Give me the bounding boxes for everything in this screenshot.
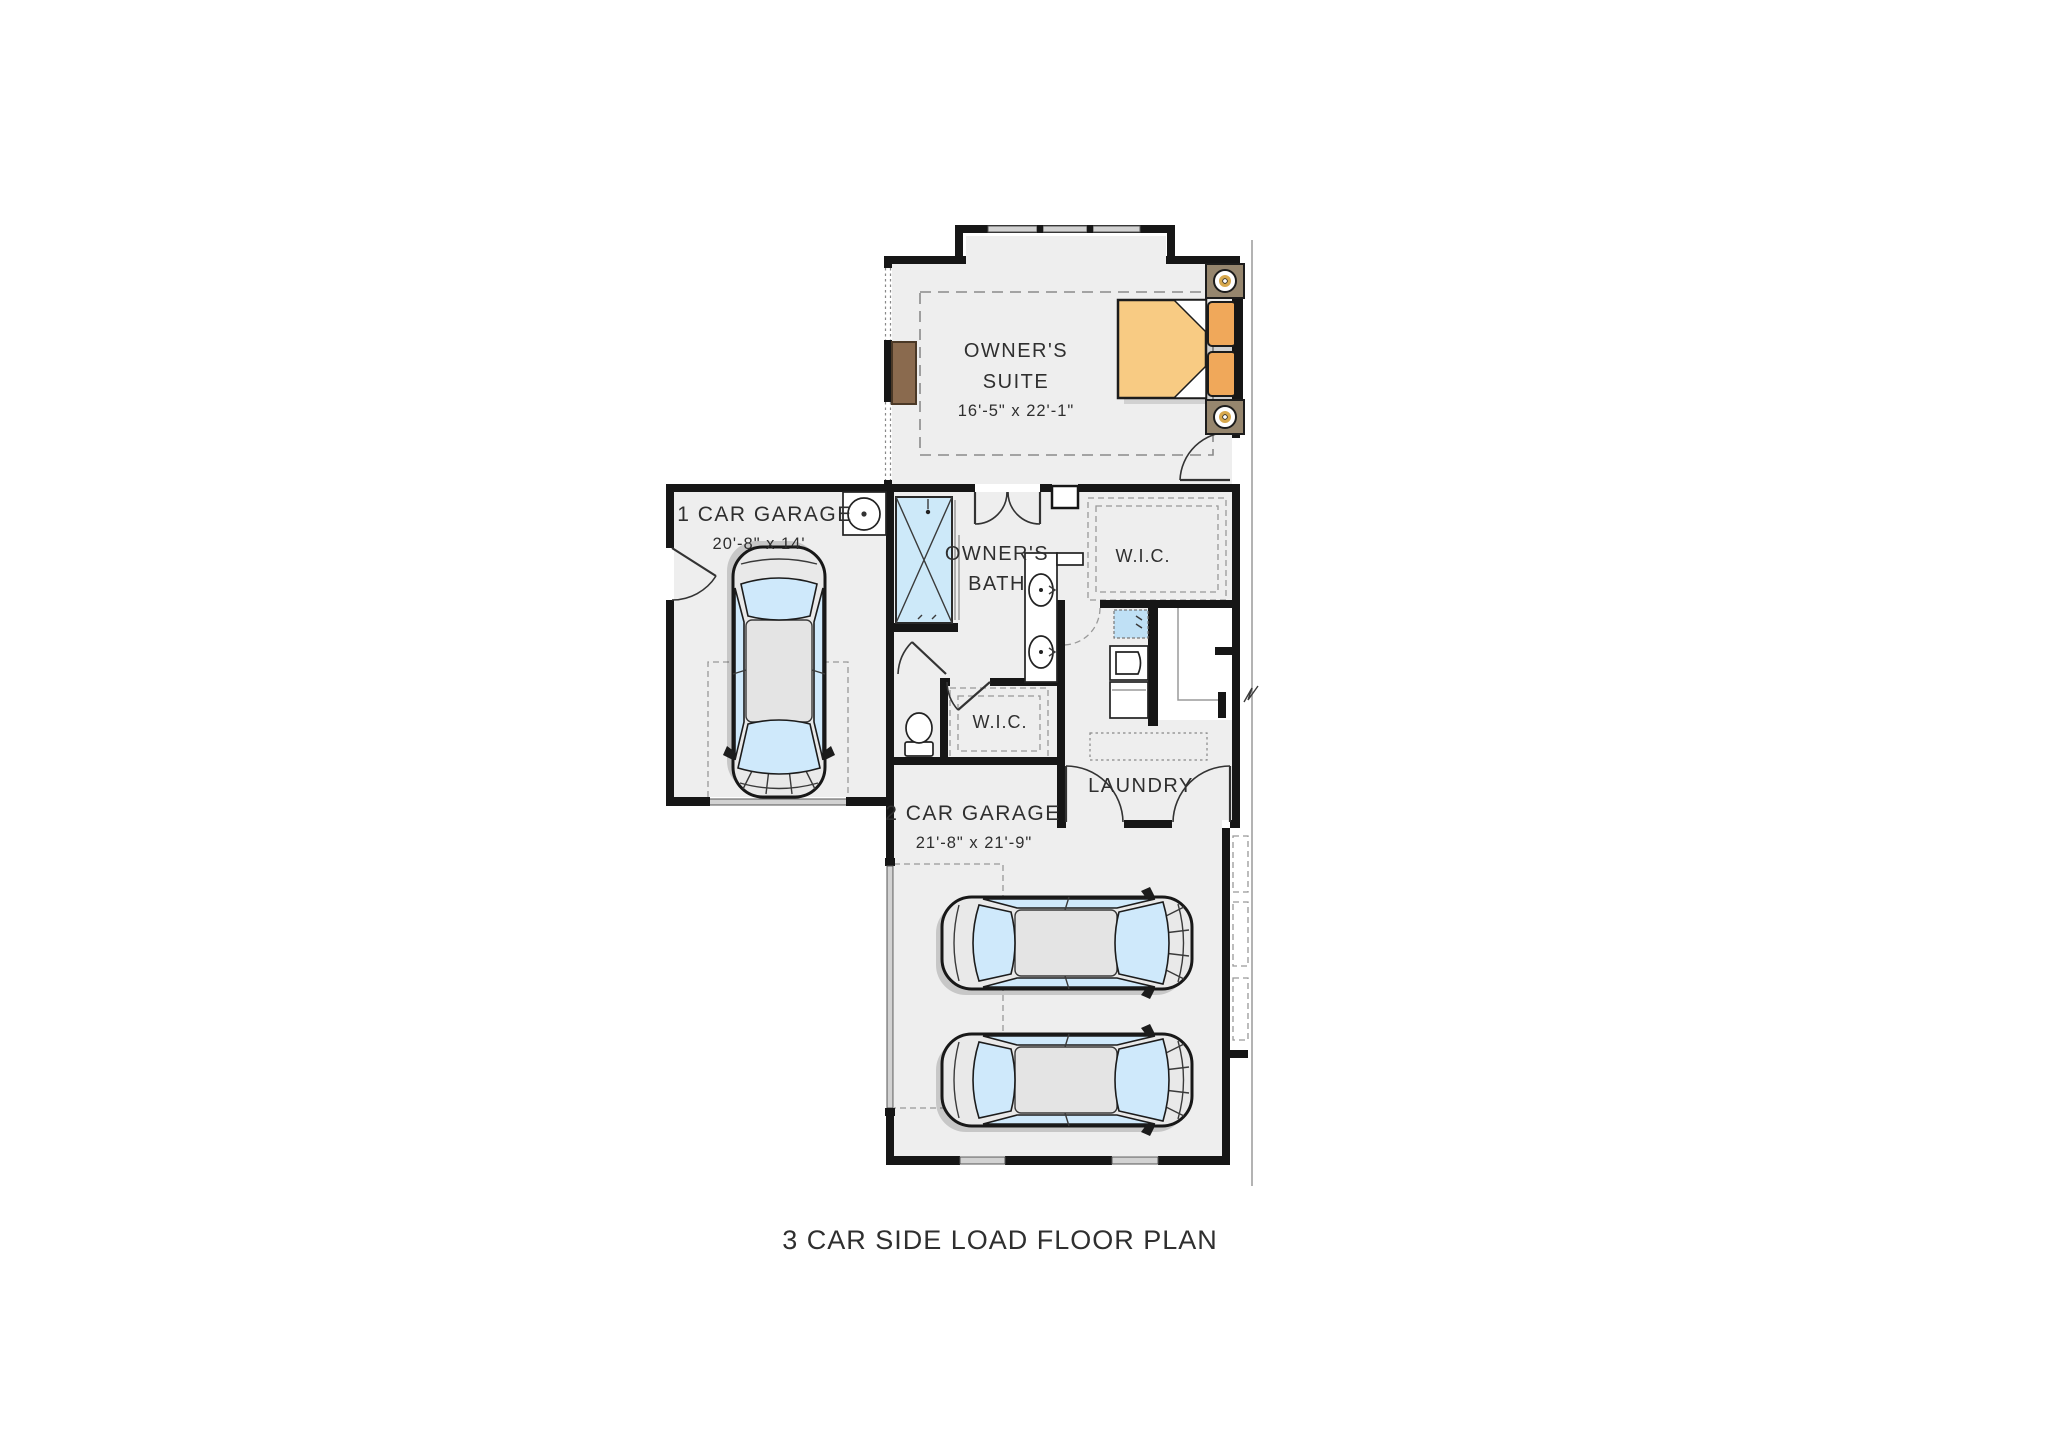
garage-1car-dims: 20'-8" x 14' [713,535,806,553]
laundry-sink [1114,610,1148,638]
garage-window-2 [1112,1157,1158,1164]
nightstand-lamp-bottom [1206,400,1244,434]
plan-title: 3 CAR SIDE LOAD FLOOR PLAN [782,1225,1218,1255]
nightstand-lamp-top [1206,264,1244,298]
floor-plan-page: OWNER'S SUITE 16'-5" x 22'-1" OWNER'S BA… [0,0,2048,1446]
garage-1car-door [708,799,848,805]
owners-suite-label-2: SUITE [983,371,1049,393]
garage-2car-door [887,866,893,1108]
wic-upper-label: W.I.C. [1116,546,1171,566]
bay-window-3 [1093,226,1140,232]
headboard [1234,296,1243,402]
wall-break-symbol [1244,686,1258,702]
owners-bath-label-1: OWNER'S [945,543,1049,565]
owners-bath-label-2: BATH [968,573,1026,595]
wall-niche [1052,486,1078,508]
toilet [905,713,933,756]
car-garage-1 [723,541,835,797]
wic-lower-label: W.I.C. [973,712,1028,732]
storage-shelf-3 [1233,978,1248,1040]
laundry-label: LAUNDRY [1088,775,1194,797]
storage-shelf-2 [1233,902,1248,966]
garage-window-1 [960,1157,1005,1164]
owners-suite-label-1: OWNER'S [964,340,1068,362]
garage-2car-dims: 21'-8" x 21'-9" [916,834,1032,852]
floor-plan-drawing: OWNER'S SUITE 16'-5" x 22'-1" OWNER'S BA… [0,0,2048,1446]
garage-1car-label: 1 CAR GARAGE [677,503,853,526]
washer-dryer [1110,646,1148,718]
dresser [892,342,916,404]
bed [1118,296,1243,404]
owners-suite-dims: 16'-5" x 22'-1" [958,402,1074,420]
bay-window-1 [988,226,1037,232]
car-garage-2a [936,887,1192,999]
car-garage-2b [936,1024,1192,1136]
garage-2car-label: 2 CAR GARAGE [885,802,1061,825]
bay-window-2 [1043,226,1087,232]
storage-shelf-1 [1233,836,1248,892]
